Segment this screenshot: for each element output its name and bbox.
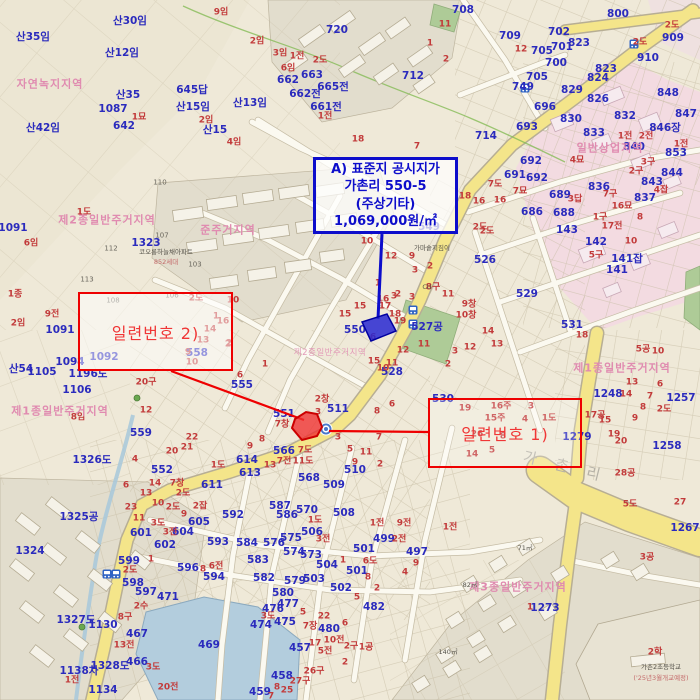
serial-number-1-box: 일련번호 1) [428,398,582,468]
callout-title: A) 표준지 공시지가 [316,161,455,179]
bus-stop-icon [409,306,418,315]
roundabout-icon [320,423,332,435]
bus-stop-icon [409,320,418,329]
tree-icon [134,395,140,401]
standard-price-callout: A) 표준지 공시지가 가촌리 550-5 (주상기타) 1,069,000원/… [313,157,458,234]
bus-stop-icon [103,570,112,579]
callout-use: (주상기타) [316,196,455,214]
bus-stop-icon [630,40,639,49]
serial-2-label: 일련번호 2) [112,320,199,344]
callout-lot: 가촌리 550-5 [316,178,455,196]
map-viewport[interactable]: 산35임산30임산12임산42임산351087642645답산15임산15산13… [0,0,700,700]
callout-price: 1,069,000원/㎡ [316,213,455,231]
bus-stop-icon [112,570,121,579]
tree-icon [79,624,85,630]
serial-number-2-box: 일련번호 2) [78,292,233,371]
bus-stop-icon [521,84,530,93]
serial-1-label: 일련번호 1) [461,421,548,445]
